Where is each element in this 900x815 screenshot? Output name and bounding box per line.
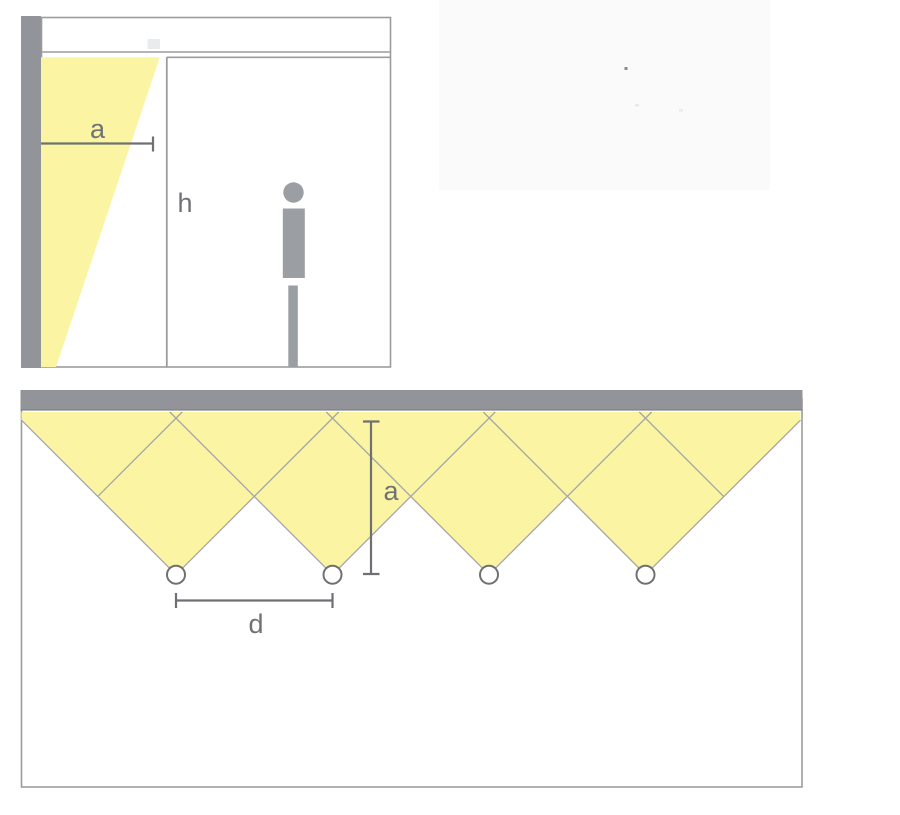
svg-text:h: h: [178, 188, 193, 218]
svg-text:a: a: [90, 114, 106, 144]
svg-text:d: d: [249, 609, 264, 639]
svg-text:a: a: [384, 476, 400, 506]
